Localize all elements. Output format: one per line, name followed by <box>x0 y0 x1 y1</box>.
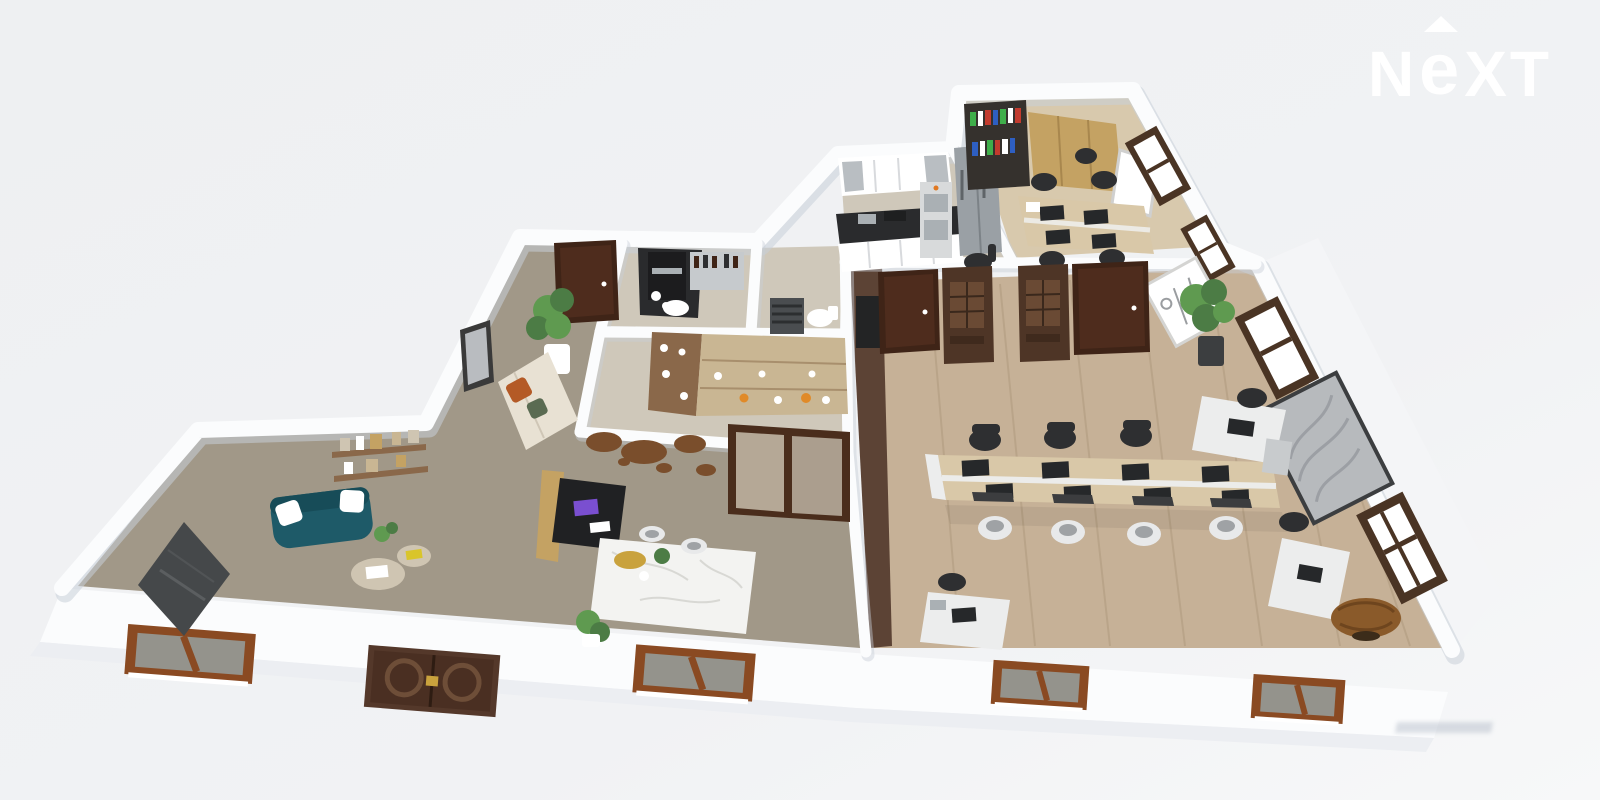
bench-desk <box>925 454 1280 508</box>
exterior-window-3 <box>991 660 1090 712</box>
logo-letter-n: N <box>1368 42 1417 106</box>
floorplan-render: N e X T <box>0 0 1600 800</box>
floorplan-canvas <box>0 0 1600 800</box>
bookshelf-colorful-books <box>964 100 1030 190</box>
exterior-window-2 <box>632 644 756 704</box>
logo-letter-e: e <box>1419 34 1462 106</box>
logo-letter-t: T <box>1510 42 1552 106</box>
marble-island <box>590 538 756 634</box>
logo-e-with-roof: e <box>1419 16 1462 106</box>
antique-cabinet-2 <box>1018 264 1070 362</box>
sliding-glass-door <box>728 424 850 522</box>
gold-tray <box>614 551 646 569</box>
next-logo: N e X T <box>1368 16 1552 106</box>
exterior-window-4 <box>1251 674 1346 726</box>
open-office-door-1 <box>878 269 940 354</box>
open-office-door-2 <box>1072 261 1150 355</box>
display-shelf-unit <box>648 332 848 416</box>
guest-chair-1 <box>639 526 665 542</box>
ornate-entry-door <box>364 645 500 717</box>
island-plant <box>654 548 670 564</box>
double-oven <box>920 182 952 258</box>
antique-cabinet-1 <box>942 266 994 364</box>
towel-radiator <box>770 298 804 334</box>
wall-shelf-bottles <box>690 252 744 290</box>
logo-letter-x: X <box>1464 42 1510 106</box>
oven-light <box>934 186 939 191</box>
exterior-window-1 <box>124 624 256 687</box>
hall-wall-picture <box>460 320 494 392</box>
guest-chair-2 <box>681 538 707 554</box>
reception-desk <box>552 478 626 550</box>
watermark-smudge <box>1395 722 1493 733</box>
